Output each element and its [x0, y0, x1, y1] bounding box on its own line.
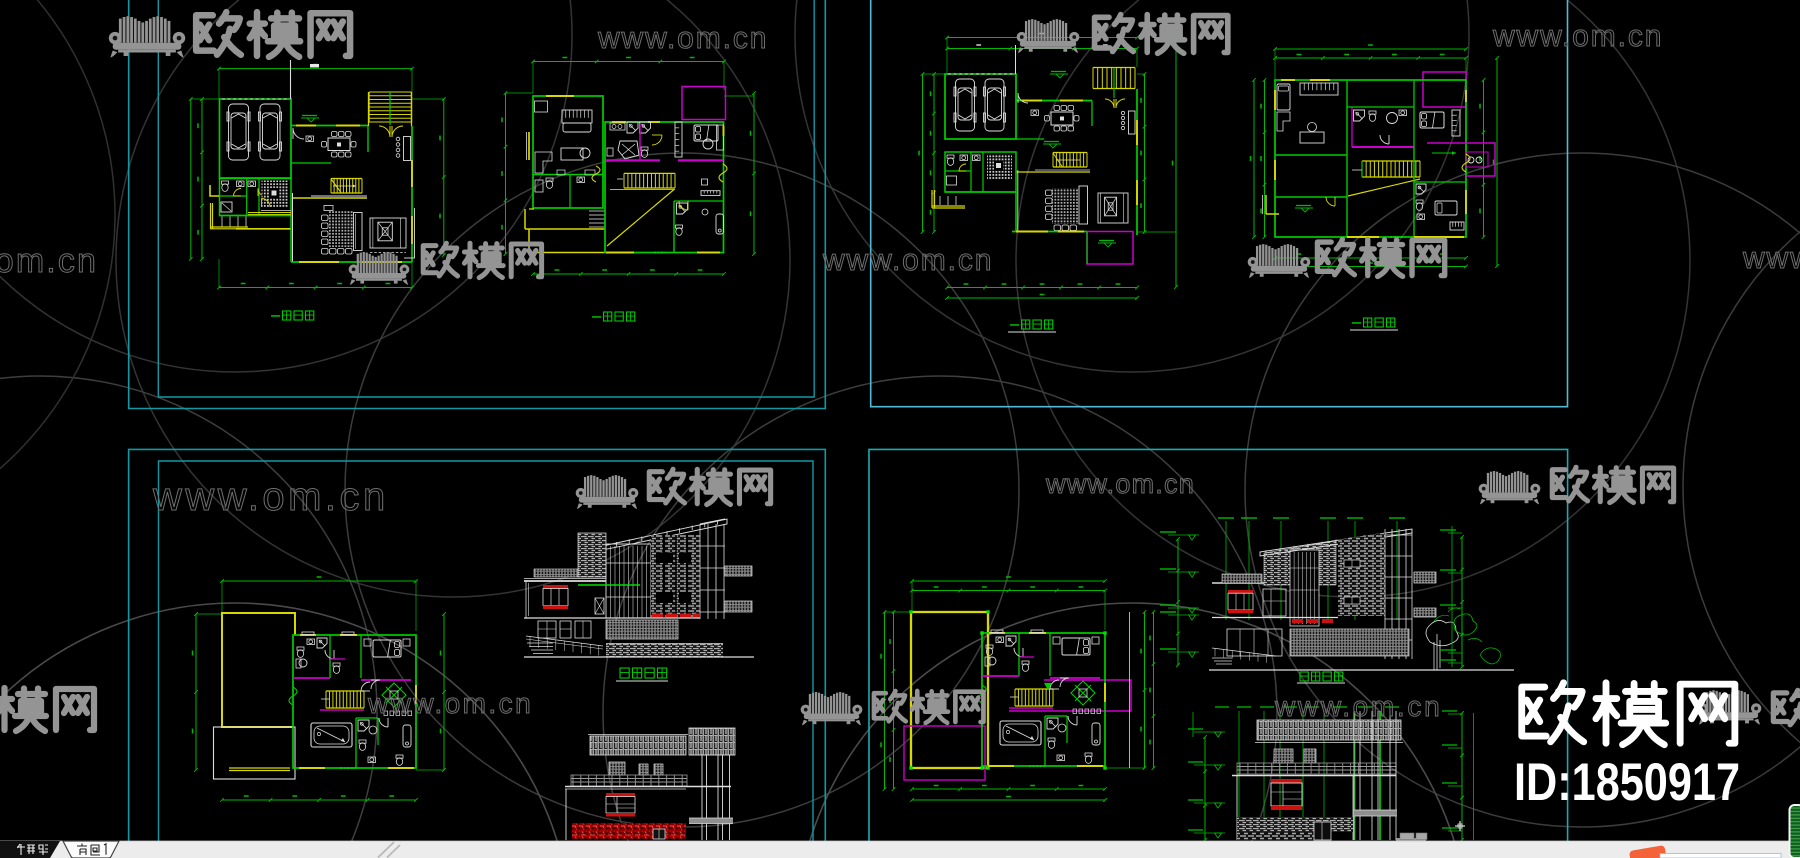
svg-text:www.om.cn: www.om.cn: [1274, 691, 1443, 722]
svg-text:www.om.cn: www.om.cn: [597, 22, 770, 55]
svg-text:www.om.cn: www.om.cn: [1045, 469, 1197, 499]
svg-text:www.om.cn: www.om.cn: [0, 242, 100, 280]
svg-text:www.om.cn: www.om.cn: [822, 244, 995, 277]
svg-text:www.om.cn: www.om.cn: [367, 688, 534, 719]
svg-text:www.om.cn: www.om.cn: [152, 475, 390, 519]
svg-text:www.om.cn: www.om.cn: [1492, 20, 1665, 53]
svg-text:ID:1850917: ID:1850917: [1514, 753, 1740, 812]
svg-text:www.om.cn: www.om.cn: [1742, 242, 1800, 275]
